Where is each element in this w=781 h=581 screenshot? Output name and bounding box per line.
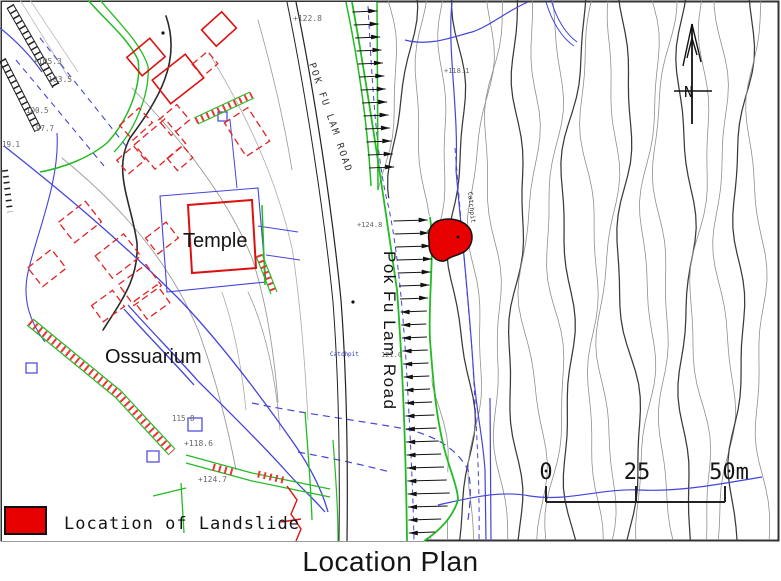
location-plan-map: Temple Ossuarium Pok Fu Lam Road POK FU … (0, 0, 781, 543)
road-main-label: Pok Fu Lam Road (380, 251, 399, 411)
spot-height: 100.5 (26, 106, 49, 115)
legend-label: Location of Landslide (64, 514, 300, 534)
scale-label-0: 0 (539, 460, 552, 485)
spot-height: +124.8 (357, 221, 382, 229)
location-plan-page: Temple Ossuarium Pok Fu Lam Road POK FU … (0, 0, 781, 581)
catchpit-west-label: Catchpit (330, 351, 359, 358)
spot-height: 97.7 (36, 124, 54, 133)
spot-height: +124.7 (198, 475, 227, 484)
spot-height: 115.8 (172, 414, 195, 423)
spot-height: 103.5 (48, 75, 72, 84)
spot-height: +105.3 (33, 57, 62, 66)
scale-label-25: 25 (624, 460, 651, 485)
ossuarium-label: Ossuarium (105, 346, 202, 368)
north-label: N (684, 83, 693, 101)
temple-label: Temple (183, 230, 247, 252)
plan-title: Location Plan (0, 546, 781, 578)
spot-height: +122.8 (293, 14, 322, 23)
legend-swatch (5, 507, 46, 534)
spot-height: +118.6 (184, 439, 213, 448)
scale-label-50m: 50m (709, 460, 749, 485)
spot-height: 19.1 (2, 140, 20, 149)
spot-height: 121.0 (381, 351, 402, 359)
spot-height: +118.1 (444, 67, 469, 75)
